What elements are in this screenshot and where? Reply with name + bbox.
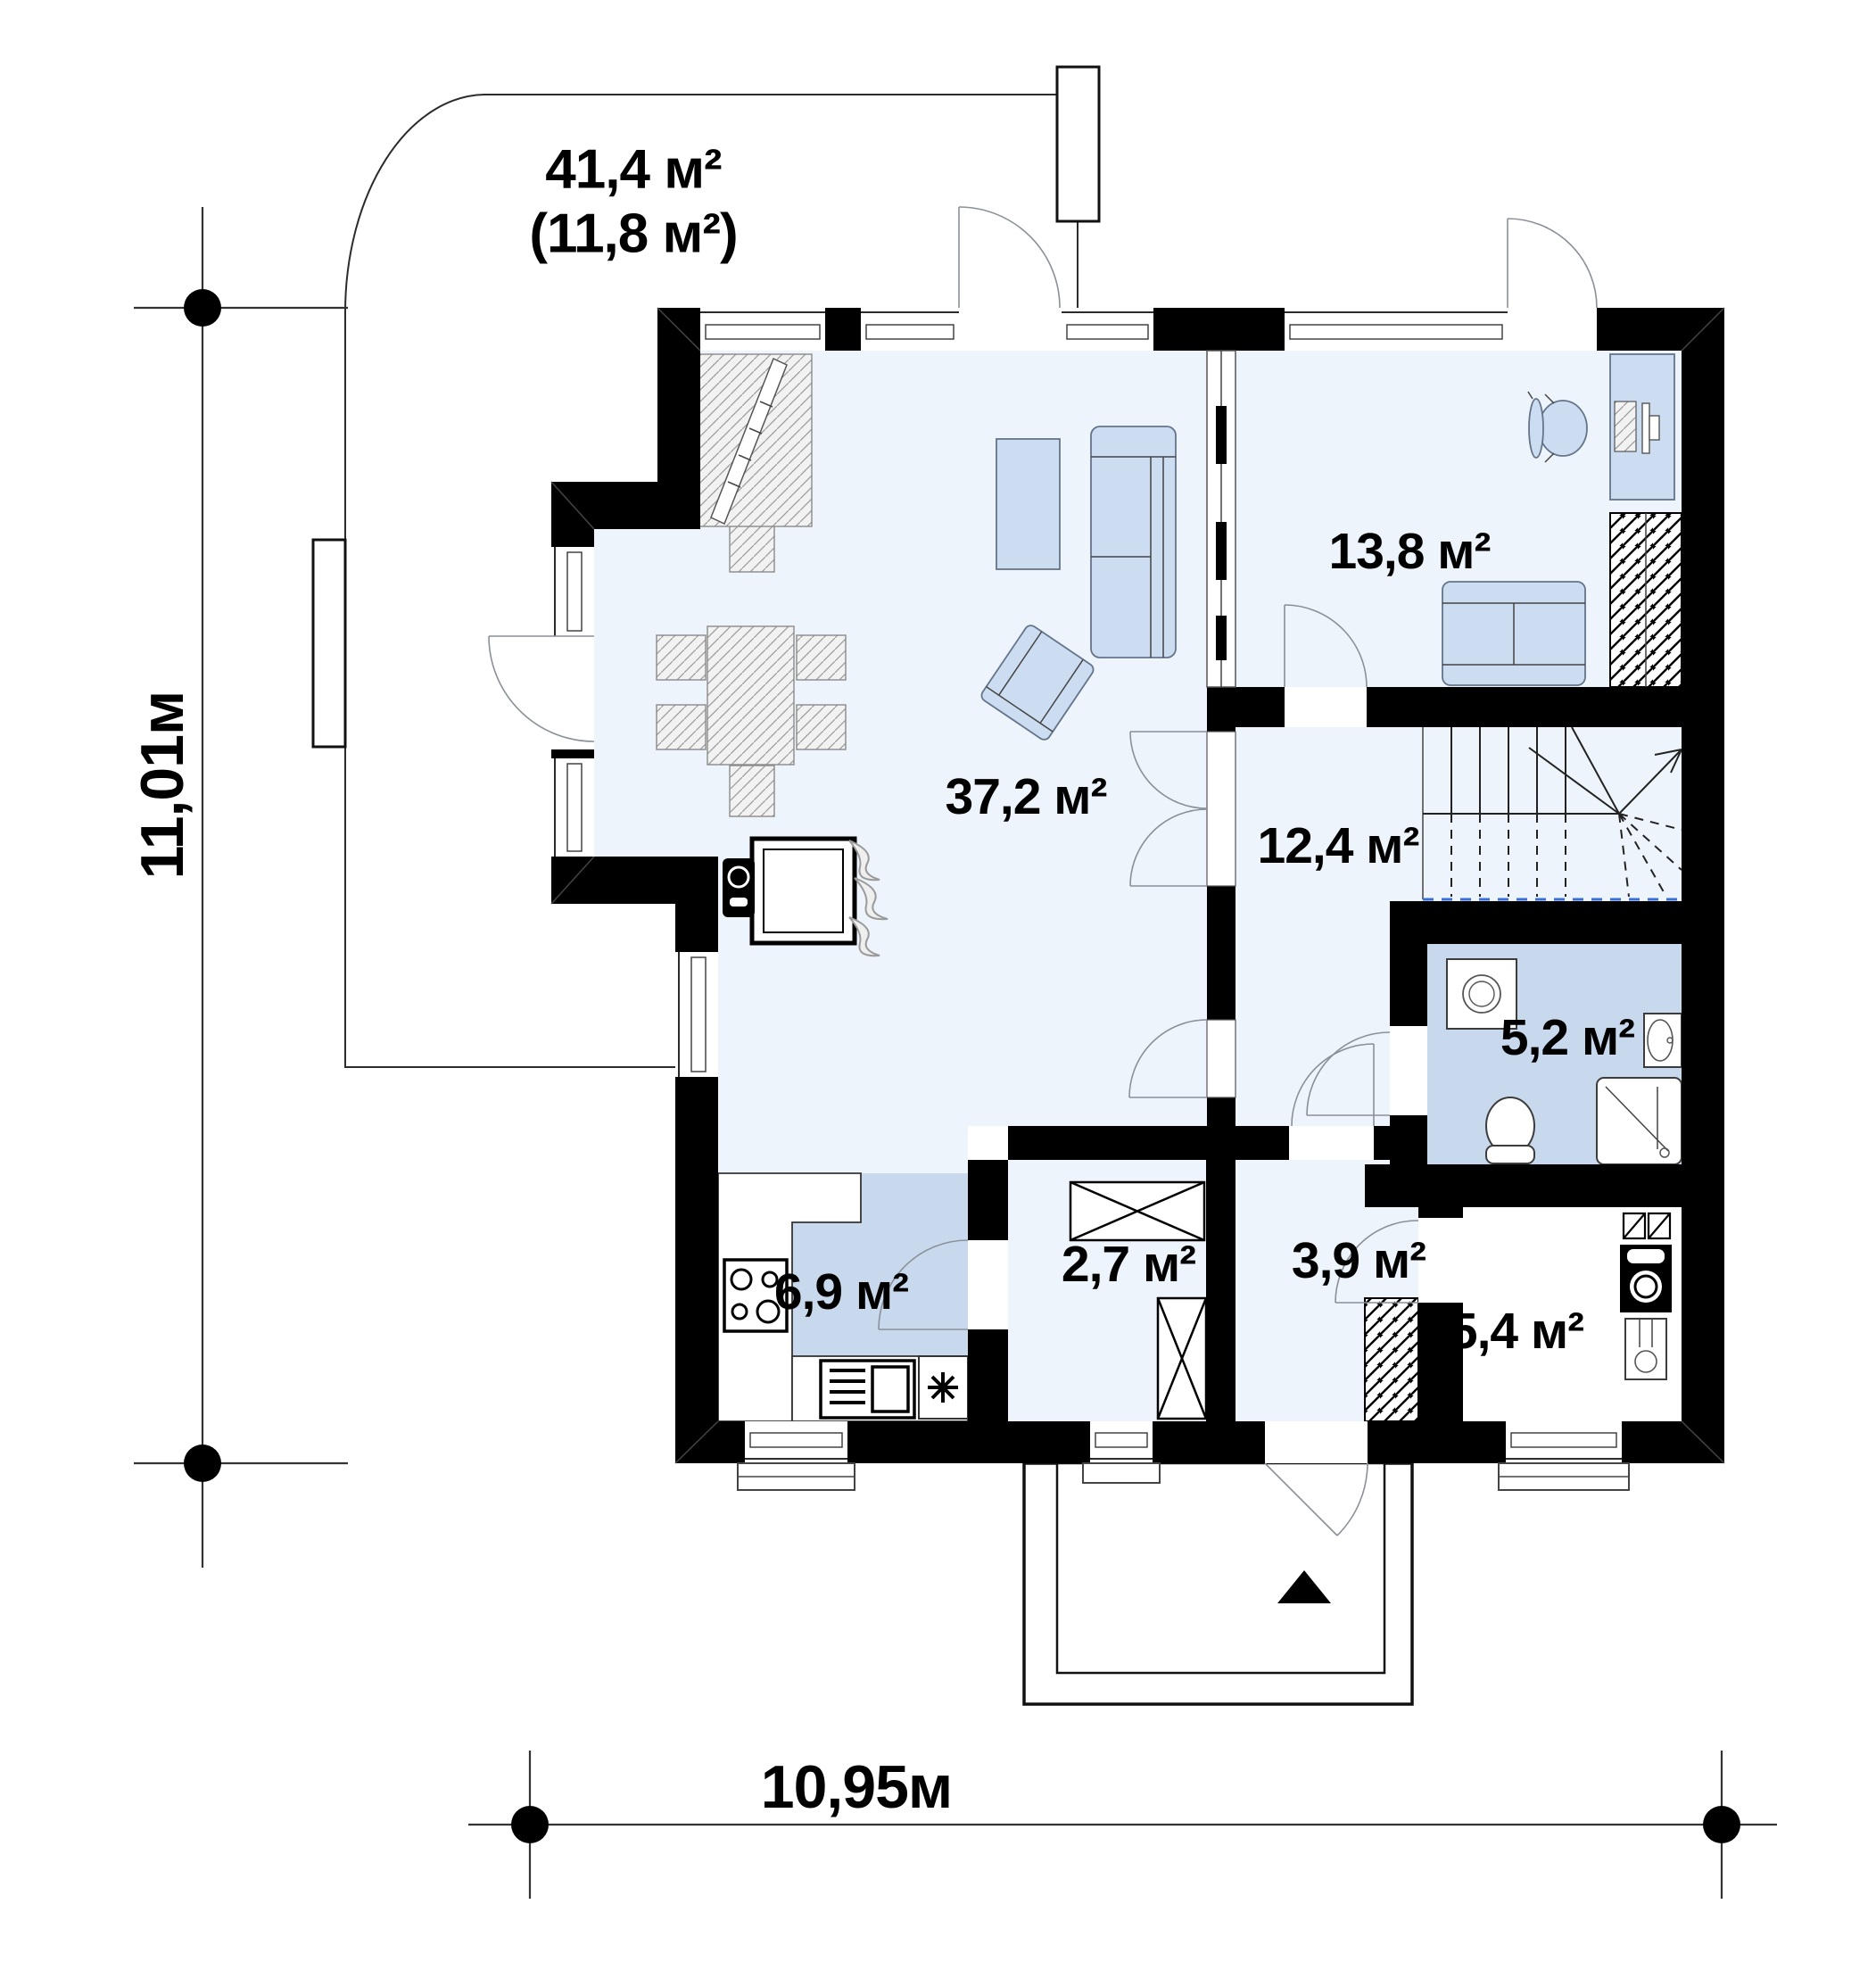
utility-area-label: 5,4 м²	[1450, 1303, 1583, 1360]
window-left-3	[675, 952, 718, 1077]
tank	[1625, 1319, 1666, 1379]
utility-window	[1499, 1421, 1629, 1490]
pantry-area-label: 2,7 м²	[1062, 1236, 1195, 1293]
terrace-bay-window	[313, 540, 345, 747]
height-dimension-label: 11,01м	[128, 691, 196, 880]
window-top-2	[861, 308, 959, 351]
dimension-vertical: 11,01м	[128, 207, 348, 1568]
window-left-1	[551, 547, 594, 636]
hall-wardrobe	[1365, 1298, 1418, 1421]
kitchen-window	[738, 1421, 855, 1490]
keyboard-icon	[1615, 402, 1636, 451]
bathroom-sink	[1644, 1014, 1682, 1067]
kitchen-area-label: 6,9 м²	[774, 1263, 908, 1320]
entry-hall-area-label: 3,9 м²	[1292, 1232, 1426, 1289]
terrace-area-note-label: (11,8 м²)	[529, 203, 737, 265]
chimney	[1057, 67, 1099, 221]
sofa	[1091, 426, 1176, 658]
office-area-label: 13,8 м²	[1329, 523, 1491, 580]
terrace-area-label: 41,4 м²	[545, 139, 722, 201]
monitor-icon	[1642, 403, 1649, 453]
width-dimension-label: 10,95м	[761, 1753, 952, 1821]
bathroom-area-label: 5,2 м²	[1500, 1009, 1634, 1066]
pantry-cabinet-1	[1070, 1182, 1204, 1240]
ladder	[691, 354, 812, 526]
pantry-cabinet-2	[1158, 1298, 1206, 1419]
terrace-door-office	[1508, 219, 1597, 351]
shower	[1597, 1078, 1682, 1164]
sliding-partition	[1207, 351, 1236, 687]
toilet	[1486, 1097, 1534, 1163]
window-top-3	[1062, 308, 1153, 351]
floor-plan-canvas: 41,4 м² (11,8 м²) 37,2 м² 13,8 м² 12,4 м…	[0, 0, 1876, 1962]
office-sofa	[1442, 582, 1585, 685]
window-top-4	[1285, 308, 1508, 351]
terrace-door-left	[489, 636, 594, 749]
hall-stairs-area-label: 12,4 м²	[1258, 817, 1419, 874]
living-room-area-label: 37,2 м²	[946, 768, 1107, 825]
fridge-asterisk-icon	[928, 1372, 958, 1403]
utility-equipment	[1620, 1213, 1672, 1379]
dimension-horizontal: 10,95м	[468, 1751, 1777, 1899]
terrace-door-top	[959, 207, 1062, 351]
desk	[1610, 354, 1674, 500]
coffee-table	[996, 439, 1060, 569]
corridor-floor	[1236, 901, 1390, 1126]
window-top-1	[700, 308, 825, 351]
entrance-porch	[1024, 1463, 1412, 1704]
window-left-2	[551, 758, 594, 857]
pantry-window	[1083, 1421, 1160, 1483]
